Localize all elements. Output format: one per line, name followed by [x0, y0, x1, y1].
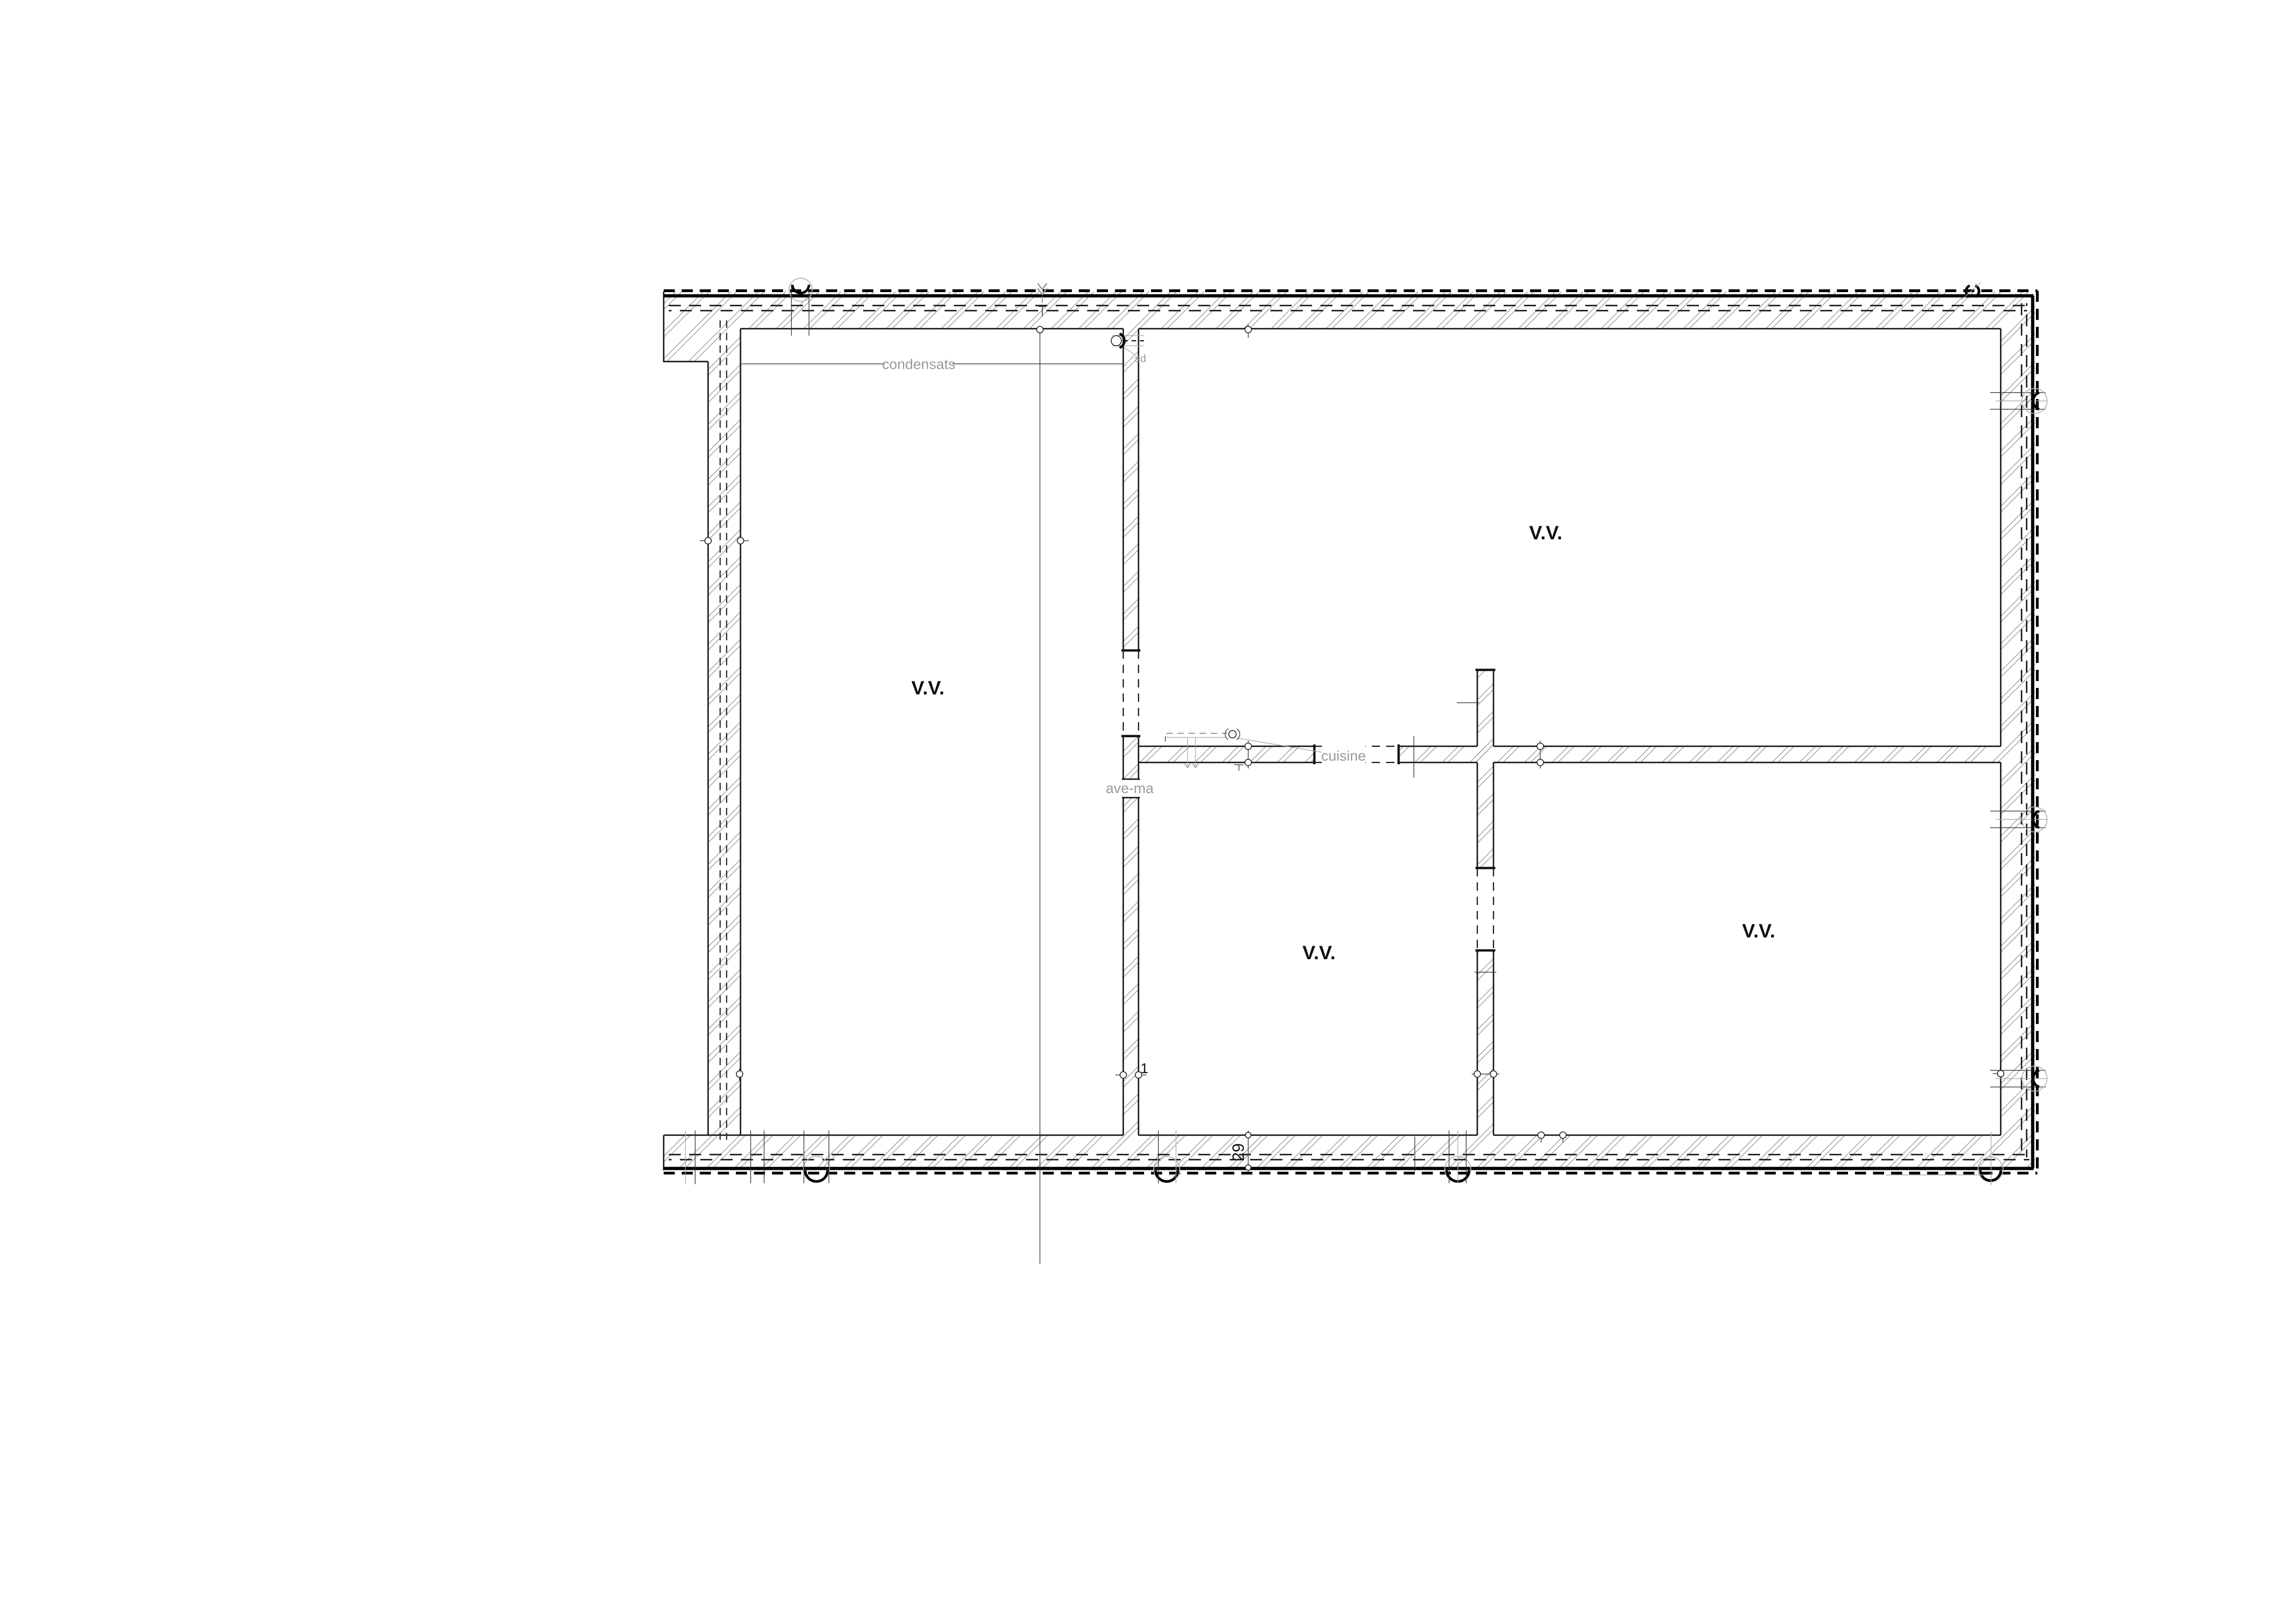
room-label-bottom-right: V.V. [1742, 920, 1775, 942]
wall-top-left-stub [664, 329, 708, 362]
iw2-west [1139, 746, 1314, 762]
wall-left [708, 329, 740, 1135]
iw1-mid [1123, 736, 1139, 779]
sd-label: sd [1135, 352, 1146, 364]
room-label-top-right: V.V. [1529, 522, 1562, 543]
iw3-upper [1477, 670, 1493, 868]
cuisine-label: cuisine [1321, 748, 1366, 764]
iw1-upper [1123, 329, 1139, 650]
floor-plan-canvas: V.V. V.V. V.V. V.V. condensats cuisine a… [0, 0, 2296, 1624]
iw1-lower [1123, 798, 1139, 1135]
washer-label: ave-ma [1106, 780, 1154, 796]
wall-right [2001, 329, 2035, 1135]
door-number-label: 1 [1140, 1060, 1148, 1076]
wall-bottom [664, 1135, 2035, 1170]
room-label-left: V.V. [911, 677, 945, 699]
iw3-lower [1477, 950, 1493, 1135]
condensats-label: condensats [882, 356, 956, 372]
wall-thickness-label: 29 [1229, 1143, 1247, 1162]
paper [0, 0, 2296, 1624]
room-label-bottom-middle: V.V. [1302, 942, 1336, 963]
